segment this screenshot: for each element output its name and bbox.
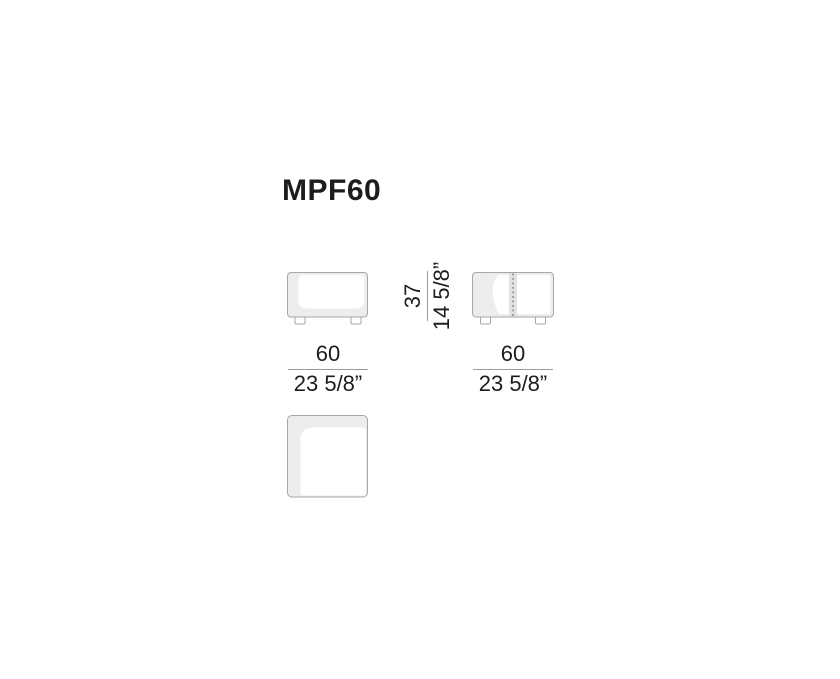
top-view-svg [287, 415, 368, 498]
front-view-drawing [287, 272, 368, 331]
front-width-inches: 23 5/8” [294, 373, 363, 395]
front-right-foot [351, 317, 361, 324]
height-dimension: 37 14 5/8” [401, 241, 453, 351]
product-code: MPF60 [282, 174, 381, 208]
dimension-line [473, 369, 553, 370]
side-cushion-highlight [493, 275, 551, 314]
height-inches: 14 5/8” [431, 262, 453, 331]
front-width-cm: 60 [316, 343, 340, 365]
top-cushion-highlight [301, 428, 367, 496]
side-right-foot [536, 317, 546, 324]
front-view-svg [287, 272, 368, 326]
side-width-dimension: 60 23 5/8” [433, 343, 593, 395]
dimension-line [288, 369, 368, 370]
front-left-foot [295, 317, 305, 324]
side-view-drawing [472, 272, 554, 331]
front-cushion-highlight [299, 275, 365, 309]
front-width-dimension: 60 23 5/8” [248, 343, 408, 395]
top-view-drawing [287, 415, 368, 503]
dimension-line [427, 271, 428, 321]
height-cm: 37 [402, 284, 424, 308]
side-left-foot [481, 317, 491, 324]
side-width-cm: 60 [501, 343, 525, 365]
spec-sheet-page: { "title": "MPF60", "dims": { "front_wid… [0, 0, 840, 679]
side-width-inches: 23 5/8” [479, 373, 548, 395]
side-view-svg [472, 272, 554, 326]
